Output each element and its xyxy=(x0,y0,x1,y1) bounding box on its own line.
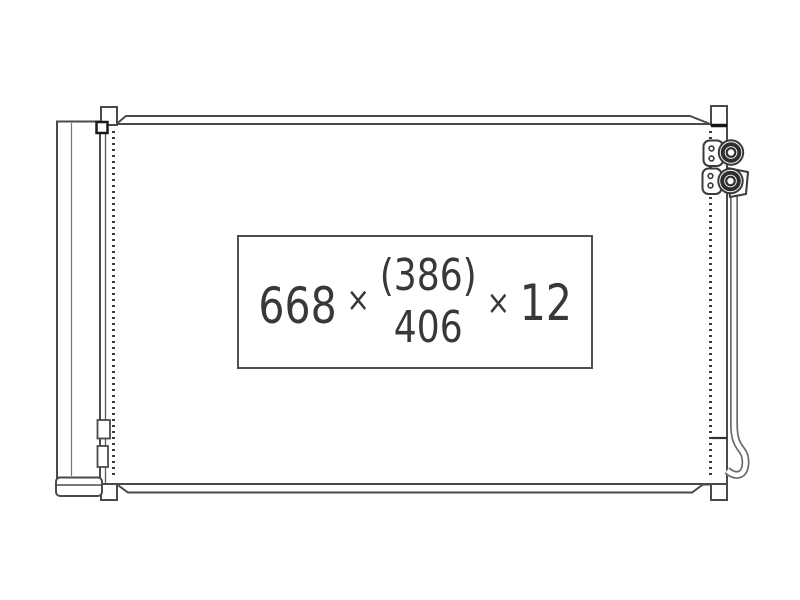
dimension-width-value: 668 xyxy=(258,281,336,331)
bracket-lower xyxy=(98,446,109,467)
dimension-height-stack: (386) 406 xyxy=(380,250,477,354)
right-tank-bottom-foot xyxy=(711,484,727,500)
upper-port-hole xyxy=(727,148,736,157)
dimension-label-box: 668 × (386) 406 × 12 xyxy=(237,235,593,369)
dimension-label: 668 × (386) 406 × 12 xyxy=(258,250,572,354)
lower-port-hole xyxy=(726,177,735,186)
dimension-thickness-value: 12 xyxy=(520,278,572,328)
bottom-plate xyxy=(117,485,711,493)
lower-port-bolt-hole-2 xyxy=(708,183,713,188)
dimension-height-value: 406 xyxy=(394,302,463,354)
lower-port-bolt-hole-1 xyxy=(708,174,713,179)
pipe-bore xyxy=(727,193,746,475)
dimension-height-paren-value: (386) xyxy=(380,250,477,302)
bracket-upper xyxy=(98,420,111,439)
receiver-drier xyxy=(56,122,102,497)
top-plate xyxy=(117,116,709,124)
multiply-sign-2: × xyxy=(486,286,509,320)
outlet-pipe xyxy=(727,193,746,475)
receiver-drier-body xyxy=(57,122,100,478)
condenser-drawing-page: 668 × (386) 406 × 12 xyxy=(0,0,800,600)
lower-port-fitting xyxy=(703,168,749,197)
multiply-sign-1: × xyxy=(346,283,369,317)
receiver-drier-bottom-cap xyxy=(56,478,102,497)
left-tank-bottom-foot xyxy=(101,484,117,500)
top-clip xyxy=(97,122,108,133)
right-tank-top-cap xyxy=(711,106,727,125)
upper-port-bolt-hole-1 xyxy=(709,146,714,151)
upper-port-fitting xyxy=(704,140,744,166)
upper-port-bolt-hole-2 xyxy=(709,156,714,161)
